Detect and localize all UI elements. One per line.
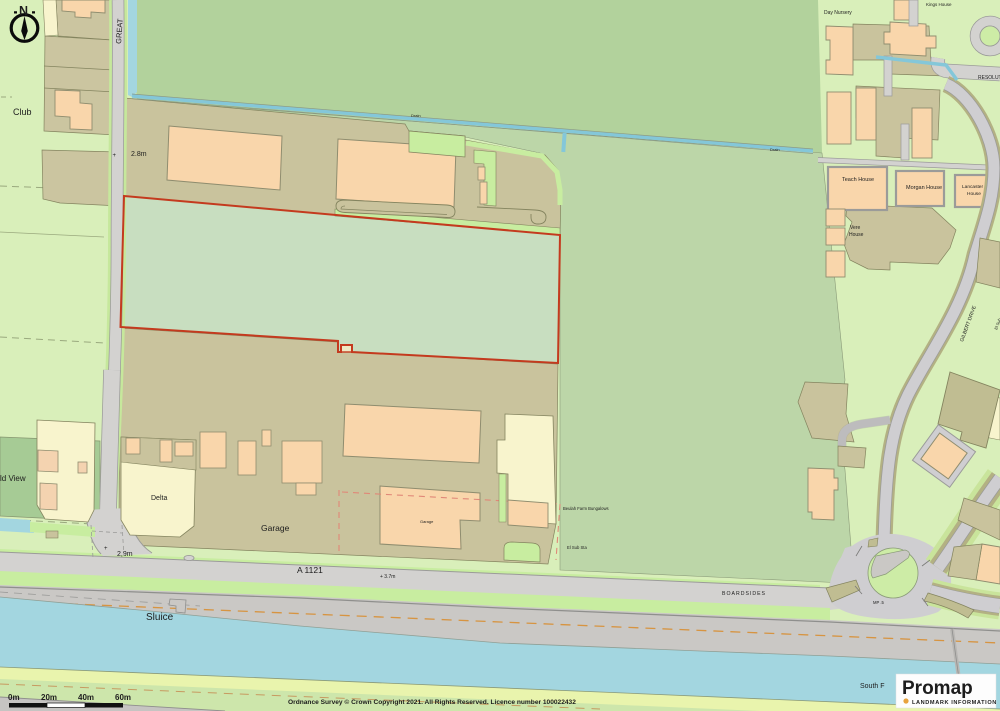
svg-text:ld View: ld View [0,474,26,483]
svg-text:Garage: Garage [420,519,434,524]
svg-text:A 1121: A 1121 [297,565,323,575]
svg-text:RESOLUT: RESOLUT [978,75,1000,81]
svg-text:Garage: Garage [261,523,290,533]
svg-text:BOARDSIDES: BOARDSIDES [722,591,766,597]
svg-text:Ordnance Survey © Crown Copyri: Ordnance Survey © Crown Copyright 2021. … [288,698,576,706]
svg-text:Drain: Drain [411,113,421,118]
svg-text:House: House [967,191,981,197]
svg-text:House: House [849,232,864,238]
svg-text:LANDMARK INFORMATION: LANDMARK INFORMATION [912,700,997,706]
svg-text:Beulah Farm Bungalows: Beulah Farm Bungalows [563,506,609,511]
svg-text:20m: 20m [41,693,57,702]
svg-text:South F: South F [860,683,885,690]
svg-text:0m: 0m [8,693,20,702]
svg-text:Drain: Drain [770,147,780,152]
svg-text:Vere: Vere [850,225,861,231]
svg-text:N: N [19,4,28,18]
svg-text:Morgan House: Morgan House [906,185,942,191]
svg-text:MP .5: MP .5 [873,600,885,605]
svg-text:Lancaster: Lancaster [962,184,983,190]
svg-text:Club: Club [13,107,32,117]
svg-text:Teach House: Teach House [842,177,874,183]
svg-text:+: + [104,546,108,552]
svg-text:El Sub Sta: El Sub Sta [567,545,587,550]
svg-text:+ 3.7m: + 3.7m [380,574,395,580]
svg-text:GREAT: GREAT [114,18,125,44]
svg-text:2,9m: 2,9m [117,551,133,558]
svg-text:60m: 60m [115,693,131,702]
svg-text:Kings House: Kings House [926,2,952,7]
svg-text:Promap: Promap [902,678,973,699]
svg-text:40m: 40m [78,693,94,702]
svg-text:+: + [113,153,117,159]
svg-text:Delta: Delta [151,495,167,502]
svg-text:2.8m: 2.8m [131,151,147,158]
svg-text:Day Nursery: Day Nursery [824,10,852,16]
svg-text:Sluice: Sluice [146,612,174,623]
